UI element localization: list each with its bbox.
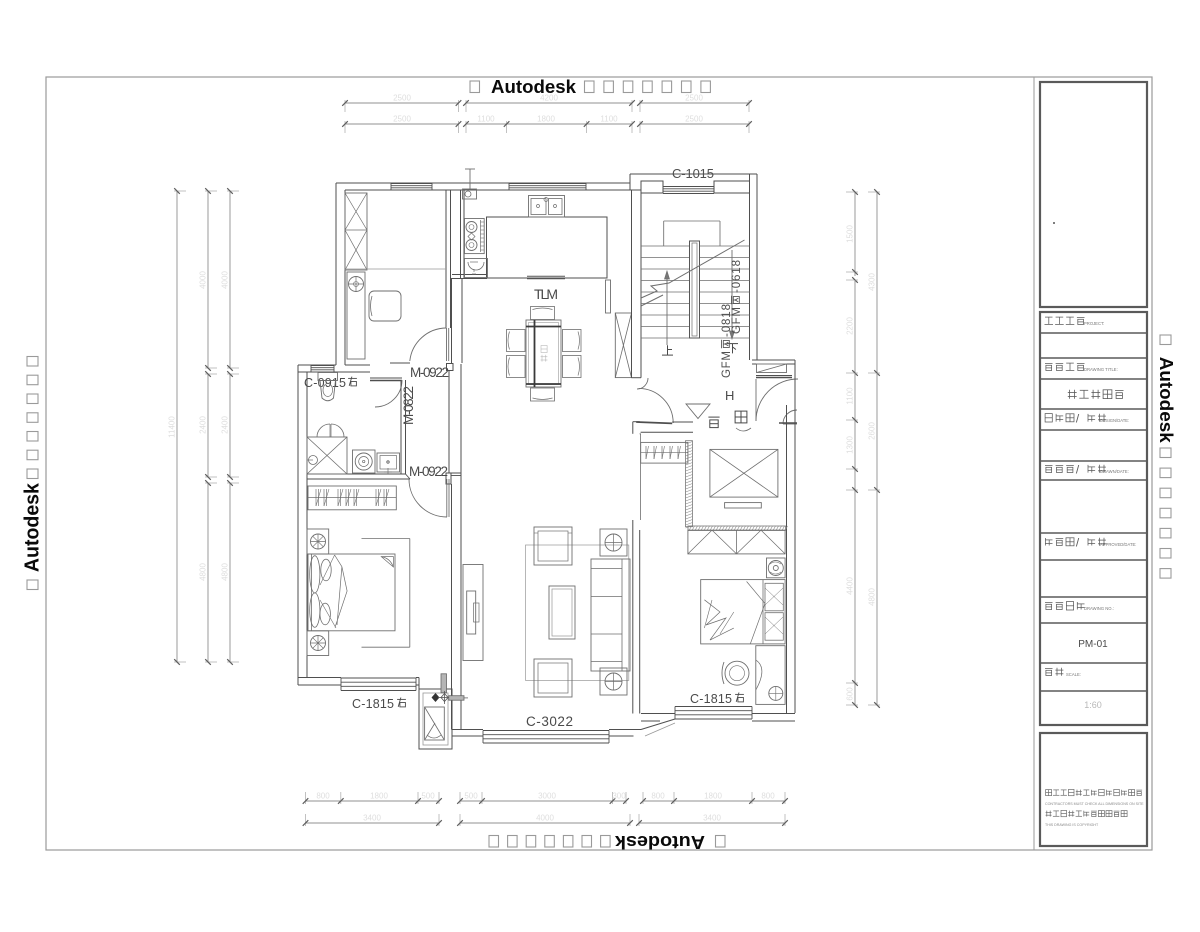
svg-text:3400: 3400 bbox=[703, 814, 721, 823]
svg-text:300: 300 bbox=[612, 792, 626, 801]
svg-text:C-1815: C-1815 bbox=[690, 692, 732, 706]
svg-text:4200: 4200 bbox=[540, 94, 558, 103]
svg-text:1100: 1100 bbox=[846, 387, 855, 405]
svg-text:C-3022: C-3022 bbox=[526, 714, 573, 729]
svg-text:1800: 1800 bbox=[537, 115, 555, 124]
svg-text:1800: 1800 bbox=[370, 792, 388, 801]
svg-text:2500: 2500 bbox=[393, 115, 411, 124]
svg-text:DRAWN/DATE:: DRAWN/DATE: bbox=[1100, 469, 1129, 474]
svg-text:Autodesk: Autodesk bbox=[491, 76, 577, 97]
svg-text:1500: 1500 bbox=[846, 225, 855, 243]
svg-text:M-0822: M-0822 bbox=[401, 386, 416, 425]
svg-text:PM-01: PM-01 bbox=[1078, 639, 1108, 650]
svg-text:Autodesk: Autodesk bbox=[614, 832, 705, 853]
svg-text:3000: 3000 bbox=[538, 792, 556, 801]
svg-text:C-0915: C-0915 bbox=[304, 376, 346, 390]
svg-text:1100: 1100 bbox=[477, 115, 495, 124]
svg-text:CONTRACTORS MUST CHECK ALL DIM: CONTRACTORS MUST CHECK ALL DIMENSIONS ON… bbox=[1045, 802, 1144, 806]
svg-text:4300: 4300 bbox=[868, 273, 877, 291]
svg-text:Autodesk: Autodesk bbox=[22, 482, 44, 572]
svg-text:800: 800 bbox=[316, 792, 330, 801]
svg-text:1300: 1300 bbox=[846, 436, 855, 454]
svg-text:3400: 3400 bbox=[363, 814, 381, 823]
svg-text:600: 600 bbox=[846, 687, 855, 701]
svg-text:THIS DRAWING IS COPYRIGHT: THIS DRAWING IS COPYRIGHT bbox=[1045, 823, 1099, 827]
svg-text:SCALE:: SCALE: bbox=[1066, 672, 1081, 677]
svg-text:Autodesk: Autodesk bbox=[1156, 357, 1176, 444]
svg-text:C-1015: C-1015 bbox=[672, 166, 714, 181]
svg-text:2200: 2200 bbox=[846, 317, 855, 335]
svg-text:DRAWING NO.:: DRAWING NO.: bbox=[1084, 606, 1114, 611]
svg-text:800: 800 bbox=[761, 792, 775, 801]
svg-text:PROJECT:: PROJECT: bbox=[1084, 321, 1104, 326]
svg-text:4000: 4000 bbox=[536, 814, 554, 823]
svg-text:4000: 4000 bbox=[199, 271, 208, 289]
svg-text:2500: 2500 bbox=[685, 94, 703, 103]
svg-text:4800: 4800 bbox=[868, 588, 877, 606]
svg-text:2500: 2500 bbox=[685, 115, 703, 124]
svg-text:DESIGN/DATE:: DESIGN/DATE: bbox=[1100, 418, 1129, 423]
svg-text:GFM: GFM bbox=[721, 351, 733, 378]
svg-text:1800: 1800 bbox=[704, 792, 722, 801]
svg-text:M-0922: M-0922 bbox=[410, 365, 449, 380]
svg-text:11400: 11400 bbox=[168, 416, 177, 438]
svg-text:4000: 4000 bbox=[221, 271, 230, 289]
svg-text:GFM: GFM bbox=[731, 307, 743, 334]
svg-text:4400: 4400 bbox=[846, 577, 855, 595]
svg-text:TLM: TLM bbox=[534, 286, 558, 302]
svg-text:1100: 1100 bbox=[600, 115, 618, 124]
svg-text:DRAWING TITLE:: DRAWING TITLE: bbox=[1084, 367, 1118, 372]
svg-text:800: 800 bbox=[651, 792, 665, 801]
svg-text:APPROVED/DATE:: APPROVED/DATE: bbox=[1100, 542, 1136, 547]
svg-text:2400: 2400 bbox=[199, 416, 208, 434]
svg-text:H: H bbox=[725, 388, 734, 403]
svg-text:2600: 2600 bbox=[868, 422, 877, 440]
svg-text:500: 500 bbox=[464, 792, 478, 801]
svg-text:1:60: 1:60 bbox=[1084, 700, 1102, 710]
svg-text:4800: 4800 bbox=[199, 563, 208, 581]
svg-text:C-1815: C-1815 bbox=[352, 697, 394, 711]
svg-text:2500: 2500 bbox=[393, 94, 411, 103]
svg-text:M-0922: M-0922 bbox=[409, 464, 448, 479]
svg-text:4800: 4800 bbox=[221, 563, 230, 581]
svg-text:2400: 2400 bbox=[221, 416, 230, 434]
svg-text:500: 500 bbox=[421, 792, 435, 801]
svg-text:-0618: -0618 bbox=[731, 260, 743, 293]
